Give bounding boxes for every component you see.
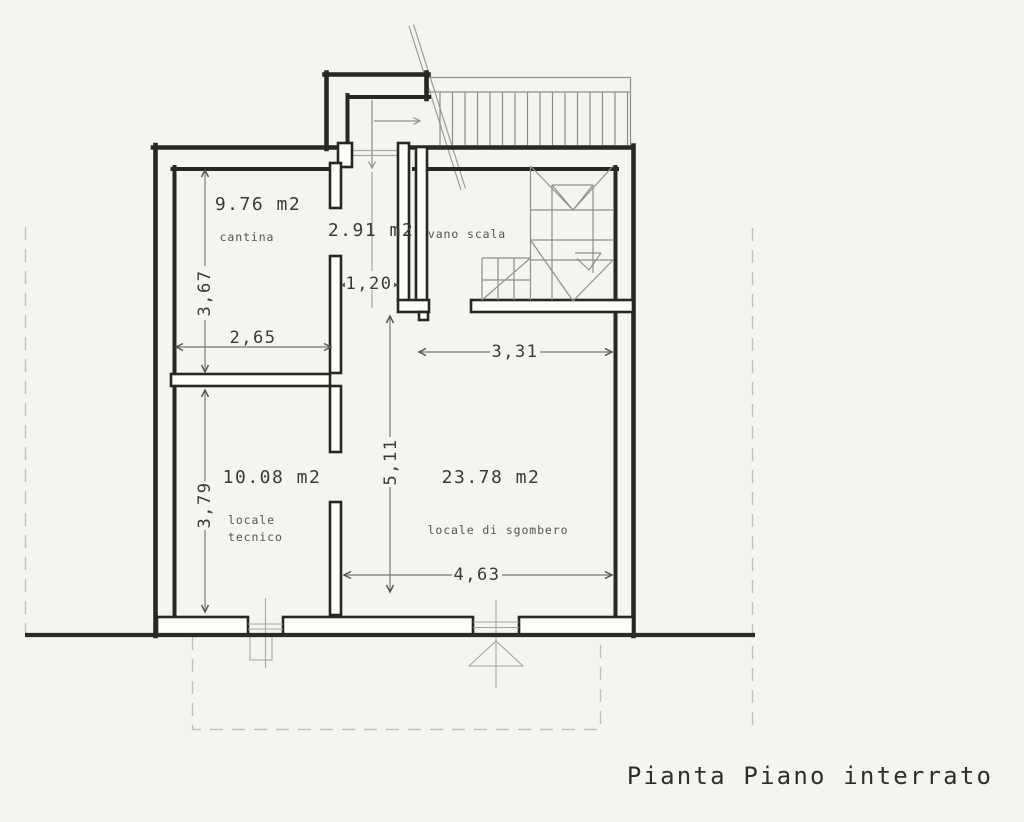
dim-text-cantina-height: 3,67	[195, 270, 215, 317]
cantina-name-label: cantina	[220, 230, 275, 244]
floor-plan-document: 3,67 2,65 1,20 3,31 5,11 3,79 4,63 9.76 …	[0, 0, 1024, 822]
opening-symbols	[248, 598, 523, 688]
protrusion-outer	[325, 73, 429, 150]
dim-text-sgombero-width: 4,63	[454, 565, 501, 585]
winder-diagonals	[531, 166, 614, 210]
outer-faces	[153, 145, 634, 636]
middle-wall-seg1	[330, 163, 341, 208]
tecnico-name-label-line1: locale	[228, 513, 275, 527]
bottom-wall-seg2	[283, 617, 473, 635]
stairwell-bottom-wall-right	[471, 300, 633, 312]
room-labels: 9.76 m2 cantina 2.91 m2 vano scala 10.08…	[215, 194, 569, 544]
interior-walls	[157, 143, 633, 635]
stairwell-door-jamb-stub	[419, 312, 428, 320]
footprint-dashed-rect	[193, 637, 601, 730]
cantina-area-label: 9.76 m2	[215, 194, 301, 215]
middle-wall-seg3	[330, 386, 341, 452]
stairwell-left-wall	[416, 147, 427, 301]
entry-door-threshold	[352, 151, 398, 156]
disimpegno-area-label: 2.91 m2	[328, 220, 414, 241]
window-sill	[250, 636, 272, 660]
external-stair-treads	[440, 92, 628, 145]
cantina-tecnico-divider	[171, 374, 330, 386]
stairwell-bottom-wall-left	[398, 300, 429, 312]
floor-plan-drawing: 3,67 2,65 1,20 3,31 5,11 3,79 4,63 9.76 …	[0, 0, 1024, 822]
sgombero-name-label: locale di sgombero	[428, 523, 569, 537]
dim-text-sgombero-top: 3,31	[492, 342, 539, 362]
sgombero-area-label: 23.78 m2	[442, 467, 541, 488]
page-title: Pianta Piano interrato	[627, 762, 993, 790]
middle-wall-seg4	[330, 502, 341, 615]
tecnico-area-label: 10.08 m2	[223, 467, 322, 488]
dim-text-tecnico-height: 3,79	[195, 482, 215, 529]
external-stair-outline	[427, 78, 631, 146]
bottom-wall-seg1	[157, 617, 248, 635]
dim-text-corridor-door: 1,20	[346, 274, 393, 294]
vano-scala-name-label: vano scala	[428, 227, 506, 241]
protrusion-inner	[348, 95, 430, 144]
dim-text-sgombero-height: 5,11	[381, 439, 401, 486]
middle-wall-seg2	[330, 256, 341, 373]
stair-direction-arrow	[575, 253, 601, 270]
bottom-wall-seg3	[519, 617, 633, 635]
dim-text-cantina-width: 2,65	[230, 328, 277, 348]
tecnico-name-label-line2: tecnico	[228, 530, 283, 544]
exterior-walls	[153, 73, 634, 637]
